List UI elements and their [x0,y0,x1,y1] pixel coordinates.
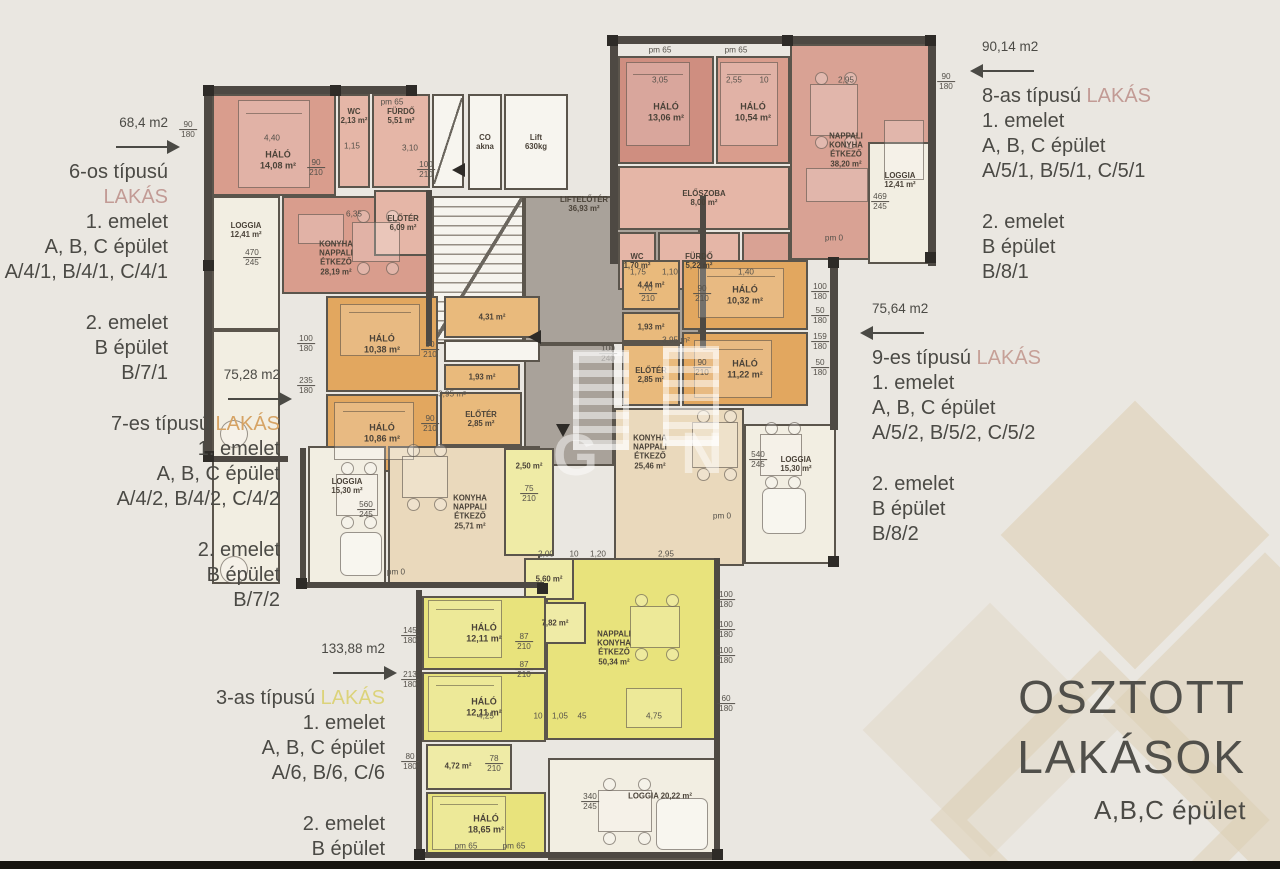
furniture-table [810,84,858,136]
apartment-title: 6-os típusú LAKÁS [0,160,168,210]
chair-icon [815,136,828,149]
chair-icon [357,262,370,275]
dimension-label: 1,15 [344,141,360,150]
dimension-label: pm 65 [503,841,526,850]
room-white-7 [444,340,540,362]
apartment-info-7: 75,28 m2 7-es típusú LAKÁS 1. emelet A, … [111,362,280,613]
furniture-table [598,790,652,832]
furniture-bed [340,304,420,356]
dimension-label: 213180 [401,670,419,690]
room-eloter-9 [622,344,680,406]
bed-pillow-line [343,411,405,412]
dimension-label: 2,95 [658,549,674,558]
dimension-label: 90210 [307,158,325,178]
dimension-label: pm 0 [825,233,843,242]
building-line: B épület [216,837,385,862]
units-line: A/5/1, B/5/1, C/5/1 [982,159,1151,184]
wall-corner [925,35,936,46]
wall-corner [330,85,341,96]
furniture-box [806,168,868,202]
dimension-label: 75210 [520,484,538,504]
chair-icon [844,136,857,149]
apartment-title: 9-es típusú LAKÁS [872,346,1041,371]
wall-corner [607,35,618,46]
area-label: 90,14 m2 [982,34,1151,59]
building-line: B épület [982,235,1151,260]
bed-pillow-line [436,685,494,686]
chair-icon [341,462,354,475]
wall-segment [416,852,720,858]
dimension-label: 4,75 [646,711,662,720]
dimension-label: 340245 [581,792,599,812]
chair-icon [697,410,710,423]
apartment-title: 3-as típusú LAKÁS [216,686,385,711]
wall-corner [203,260,214,271]
dimension-label: 2,55 [726,75,742,84]
chair-icon [697,468,710,481]
dimension-label: 45 [577,711,586,720]
dimension-label: 100210 [417,160,435,180]
apartment-info-6: 68,4 m2 6-os típusú LAKÁS 1. emelet A, B… [0,110,168,386]
chair-icon [666,594,679,607]
chair-icon [386,210,399,223]
buildings-line: A, B, C épület [982,134,1151,159]
wall-corner [537,583,548,594]
apartment-info-3: 133,88 m2 3-as típusú LAKÁS 1. emelet A,… [216,636,385,869]
buildings-line: A, B, C épület [216,736,385,761]
area-row: 90,14 m2 [982,34,1151,84]
dimension-label: 78210 [485,754,503,774]
dimension-label: 87210 [515,660,533,680]
wall-corner [712,849,723,860]
wall-corner [782,35,793,46]
wall-corner [406,85,417,96]
unit-line: B/8/1 [982,260,1151,285]
furniture-sq [340,532,382,576]
bed-pillow-line [436,609,494,610]
wall-segment [302,582,544,588]
furniture-bed [238,100,310,188]
area-row: 133,88 m2 [216,636,385,686]
dimension-label: 560245 [357,500,375,520]
floor-line: 1. emelet [0,210,168,235]
dimension-label: 235180 [297,376,315,396]
chair-icon [635,648,648,661]
room-co-akna [468,94,502,190]
buildings-line: A, B, C épület [0,235,168,260]
building-line: B épület [872,497,1041,522]
dimension-label: pm 0 [387,567,405,576]
furniture-table [692,422,738,468]
dimension-label: 100180 [297,334,315,354]
dimension-label: 6,35 [346,209,362,218]
room-lift [504,94,568,190]
chair-icon [724,410,737,423]
wall-corner [203,85,214,96]
chair-icon [434,498,447,511]
dimension-label: pm 0 [713,511,731,520]
wall-corner [828,257,839,268]
dimension-label: 2,00 [538,549,554,558]
dimension-label: 87210 [515,632,533,652]
floor-line: 2. emelet [111,538,280,563]
dimension-label: 3,05 [652,75,668,84]
wall-segment [300,448,306,588]
area-label: 75,28 m2 [111,362,280,387]
dimension-label: 540245 [749,450,767,470]
area-label: 68,4 m2 [0,110,168,135]
arrow-icon [872,332,924,334]
dimension-label: 159180 [811,332,829,352]
furniture-sq [656,798,708,850]
room-r431-7 [444,296,540,338]
wall-segment [928,36,936,266]
dimension-label: 90210 [421,340,439,360]
room-eloter-7 [440,392,522,446]
chair-icon [364,462,377,475]
wall-corner [925,252,936,263]
apartment-title: 7-es típusú LAKÁS [111,412,280,437]
apartment-info-8: 90,14 m2 8-as típusú LAKÁS 1. emelet A, … [982,34,1151,285]
furniture-bed [428,600,502,658]
chair-icon [603,778,616,791]
dimension-label: 3,95 m² [438,389,466,398]
section-marker-icon [528,330,541,344]
area-row: 68,4 m2 [0,110,168,160]
bed-pillow-line [246,113,302,114]
dimension-label: 1,20 [590,549,606,558]
furniture-bed [334,402,414,460]
dimension-label: 145180 [401,626,419,646]
area-row: 75,28 m2 [111,362,280,412]
dimension-label: 100180 [811,282,829,302]
dimension-label: 1,05 [552,711,568,720]
building-line: B épület [0,336,168,361]
chair-icon [434,444,447,457]
chair-icon [666,648,679,661]
bed-pillow-line [440,804,498,805]
dimension-label: 50180 [811,306,829,326]
dimension-label: 100180 [717,620,735,640]
bed-pillow-line [349,312,411,313]
chair-icon [815,72,828,85]
section-marker-icon [452,163,465,177]
arrow-icon [228,398,280,400]
dimension-label: 4,25 [478,711,494,720]
chair-icon [765,422,778,435]
title-subtitle: A,B,C épület [1017,794,1246,828]
apartment-info-9: 75,64 m2 9-es típusú LAKÁS 1. emelet A, … [872,296,1041,547]
dimension-label: pm 65 [649,45,672,54]
units-line: A/4/1, B/4/1, C/4/1 [0,260,168,285]
dimension-label: 90180 [179,120,197,140]
wall-corner [414,849,425,860]
furniture-sq [762,488,806,534]
dimension-label: pm 65 [381,97,404,106]
bed-pillow-line [703,349,764,350]
floor-line: 2. emelet [872,472,1041,497]
chair-icon [638,778,651,791]
wall-segment [204,86,416,94]
area-row: 75,64 m2 [872,296,1041,346]
dimension-label: 60180 [717,694,735,714]
dimension-label: 2,95 [838,75,854,84]
title-line2: LAKÁSOK [1017,728,1246,788]
furniture-box [626,688,682,728]
dimension-label: 470245 [243,248,261,268]
dimension-label: 100180 [717,646,735,666]
floor-line: 2. emelet [0,311,168,336]
chair-icon [638,832,651,845]
buildings-line: A, B, C épület [111,462,280,487]
chair-icon [341,516,354,529]
floor-line: 2. emelet [982,210,1151,235]
chair-icon [603,832,616,845]
furniture-box [884,120,924,180]
chair-icon [788,422,801,435]
furniture-box [298,214,344,244]
page-title: OSZTOTT LAKÁSOK A,B,C épület [1017,668,1246,827]
arrow-icon [333,672,385,674]
dimension-label: 4,40 [264,133,280,142]
room-r193-7 [444,364,520,390]
wall-corner [296,578,307,589]
dimension-label: 70210 [639,284,657,304]
floor-line: 1. emelet [872,371,1041,396]
dimension-label: 1,40 [738,267,754,276]
area-label: 133,88 m2 [216,636,385,661]
wall-segment [608,36,936,44]
unit-line: B/7/2 [111,588,280,613]
floor-line: 1. emelet [982,109,1151,134]
dimension-label: 100240 [599,344,617,364]
dimension-label: 90180 [937,72,955,92]
chair-icon [635,594,648,607]
buildings-line: A, B, C épület [872,396,1041,421]
furniture-table [630,606,680,648]
dimension-label: 1,10 [662,267,678,276]
chair-icon [407,498,420,511]
furniture-table [402,456,448,498]
dimension-label: 10 [569,549,578,558]
dimension-label: pm 65 [455,841,478,850]
dimension-label: 90210 [693,284,711,304]
dimension-label: 3,95 m² [662,335,690,344]
chair-icon [724,468,737,481]
dimension-label: 1,75 [630,267,646,276]
furniture-table [352,222,400,262]
dimension-label: pm 65 [725,45,748,54]
floor-line: 1. emelet [216,711,385,736]
area-label: 75,64 m2 [872,296,1041,321]
dimension-label: 10 [533,711,542,720]
arrow-icon [982,70,1034,72]
dimension-label: 80180 [401,752,419,772]
chair-icon [386,262,399,275]
dimension-label: 90210 [693,358,711,378]
bottom-edge-bar [0,861,1280,869]
dimension-label: 3,10 [402,143,418,152]
section-marker-icon [556,424,570,437]
units-line: A/6, B/6, C/6 [216,761,385,786]
dimension-label: 100180 [717,590,735,610]
units-line: A/4/2, B/4/2, C/4/2 [111,487,280,512]
arrow-icon [116,146,168,148]
room-r560-3 [524,558,574,600]
unit-line: B/8/2 [872,522,1041,547]
chair-icon [407,444,420,457]
furniture-bed [428,676,502,732]
floor-line: 2. emelet [216,812,385,837]
dimension-label: 50180 [811,358,829,378]
dimension-label: 10 [759,75,768,84]
wall-segment [830,258,838,430]
units-line: A/5/2, B/5/2, C/5/2 [872,421,1041,446]
floor-line: 1. emelet [111,437,280,462]
building-line: B épület [111,563,280,588]
dimension-label: 90210 [421,414,439,434]
dimension-label: 469245 [871,192,889,212]
apartment-title: 8-as típusú LAKÁS [982,84,1151,109]
wall-segment [610,36,618,264]
wall-segment [426,190,432,346]
wall-corner [828,556,839,567]
title-line1: OSZTOTT [1017,668,1246,728]
floorplan-page: HÁLÓ 14,08 m²WC 2,13 m²FÜRDŐ 5,51 m²CO a… [0,0,1280,869]
